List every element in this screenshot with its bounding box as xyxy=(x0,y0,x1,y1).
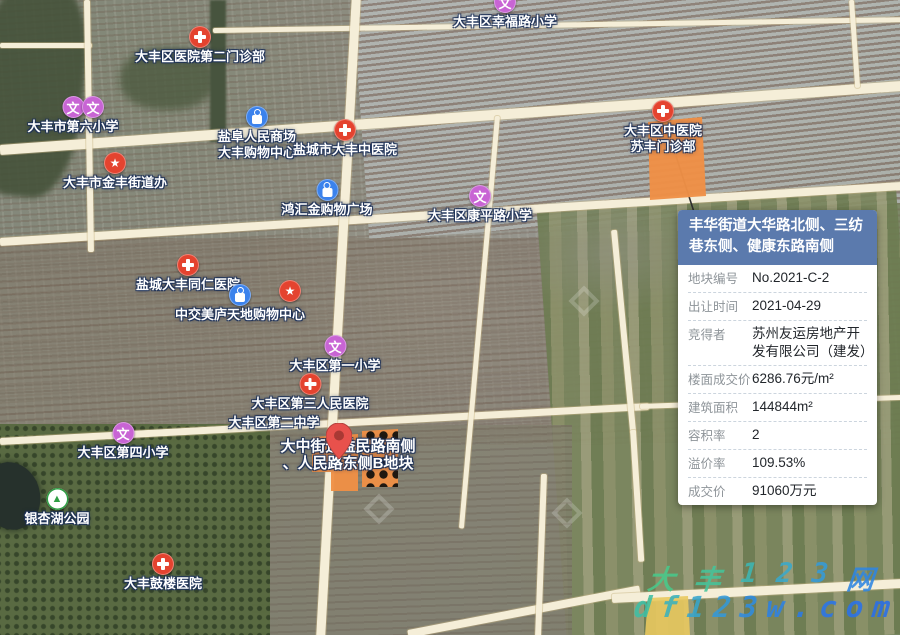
shopping-icon xyxy=(246,106,268,128)
row-value: 2021-04-29 xyxy=(752,297,867,316)
poi-label: 大丰市金丰街道办 xyxy=(63,175,167,190)
hospital-icon xyxy=(177,254,199,276)
parcel-info-row: 容积率 2 xyxy=(688,422,867,450)
poi-label: 鸿汇金购物广场 xyxy=(281,202,372,217)
gov-jinfeng-subdistrict[interactable]: ★ 大丰市金丰街道办 xyxy=(63,152,167,190)
row-value: 109.53% xyxy=(752,454,867,473)
poi-label: 大丰区第三人民医院 xyxy=(251,396,368,411)
poi-label: 盐城市大丰中医院 xyxy=(293,142,397,157)
mall-yanfu-renmin[interactable]: 盐阜人民商场大丰购物中心 xyxy=(218,106,296,160)
row-label: 出让时间 xyxy=(688,297,752,316)
school-xingfulu-primary[interactable]: 文 大丰区幸福路小学 xyxy=(453,0,557,29)
poi-label: 大丰区医院第二门诊部 xyxy=(135,49,265,64)
mall-honghuijin[interactable]: 鸿汇金购物广场 xyxy=(281,179,372,217)
parcel-info-row: 建筑面积 144844m² xyxy=(688,394,867,422)
poi-label: 大丰区中医院 xyxy=(624,123,702,138)
school-no2-middle[interactable]: 大丰区第二中学 xyxy=(228,414,319,430)
star-poi[interactable]: ★ xyxy=(279,280,301,302)
row-label: 容积率 xyxy=(688,426,752,445)
poi-label: 苏丰门诊部 xyxy=(630,139,695,154)
parcel-yellow[interactable] xyxy=(645,596,690,635)
poi-label: 银杏湖公园 xyxy=(24,511,89,526)
hospital-icon xyxy=(189,26,211,48)
parcel-info-row: 地块编号 No.2021-C-2 xyxy=(688,265,867,293)
hospital-district-no2-clinic[interactable]: 大丰区医院第二门诊部 xyxy=(135,26,265,64)
poi-label: 大丰区康平路小学 xyxy=(428,208,532,223)
poi-label: 中交美庐天地购物中心 xyxy=(175,307,305,322)
parcel-info-row: 成交价 91060万元 xyxy=(688,478,867,505)
park-icon: ▲ xyxy=(46,488,68,510)
row-label: 竞得者 xyxy=(688,325,752,361)
parcel-info-title: 丰华街道大华路北侧、三纺巷东侧、健康东路南侧 xyxy=(678,210,877,265)
map-canvas[interactable]: 文 大丰区幸福路小学 大丰区医院第二门诊部 文 大丰市第六小学 文 盐阜人民商场… xyxy=(0,0,900,635)
poi-label: 大丰区第二中学 xyxy=(228,415,319,430)
school-icon: 文 xyxy=(82,96,104,118)
hospital-icon xyxy=(299,373,321,395)
row-value: 6286.76元/m² xyxy=(752,370,867,389)
row-label: 溢价率 xyxy=(688,454,752,473)
poi-label: 大丰区幸福路小学 xyxy=(453,14,557,29)
parcel-info-row: 出让时间 2021-04-29 xyxy=(688,293,867,321)
row-label: 楼面成交价 xyxy=(688,370,752,389)
row-value: 苏州友运房地产开发有限公司（建发） xyxy=(752,325,867,361)
poi-label: 大丰鼓楼医院 xyxy=(124,576,202,591)
hospital-dafeng-tcm[interactable]: 盐城市大丰中医院 xyxy=(293,119,397,157)
hospital-icon xyxy=(652,100,674,122)
school-icon: 文 xyxy=(469,185,491,207)
hospital-no3-people[interactable]: 大丰区第三人民医院 xyxy=(251,373,368,411)
hospital-tcm-sufeng-clinic[interactable]: 大丰区中医院苏丰门诊部 xyxy=(624,100,702,154)
hospital-icon xyxy=(334,119,356,141)
hospital-gulou[interactable]: 大丰鼓楼医院 xyxy=(124,553,202,591)
parcel-info-rows: 地块编号 No.2021-C-2 出让时间 2021-04-29 竞得者 苏州友… xyxy=(678,265,877,505)
poi-label: 大丰区第四小学 xyxy=(77,445,168,460)
row-value: 91060万元 xyxy=(752,482,867,501)
parcel-info-row: 楼面成交价 6286.76元/m² xyxy=(688,366,867,394)
row-value: No.2021-C-2 xyxy=(752,269,867,288)
school-no4-primary[interactable]: 文 大丰区第四小学 xyxy=(77,422,168,460)
row-value: 144844m² xyxy=(752,398,867,417)
hospital-icon xyxy=(152,553,174,575)
row-value: 2 xyxy=(752,426,867,445)
school-icon: 文 xyxy=(324,335,346,357)
road xyxy=(0,43,92,48)
star-icon: ★ xyxy=(104,152,126,174)
park-yinxinghu[interactable]: ▲ 银杏湖公园 xyxy=(24,488,89,526)
school-kangpinglu-primary[interactable]: 文 大丰区康平路小学 xyxy=(428,185,532,223)
school-icon: 文 xyxy=(62,96,84,118)
poi-label: 盐阜人民商场 xyxy=(218,129,296,144)
location-pin-icon[interactable] xyxy=(326,423,352,459)
parcel-info-row: 竞得者 苏州友运房地产开发有限公司（建发） xyxy=(688,321,867,366)
poi-label: 大丰区第一小学 xyxy=(289,358,380,373)
school-no6-primary-b[interactable]: 文 xyxy=(82,96,104,118)
school-no1-primary[interactable]: 文 大丰区第一小学 xyxy=(289,335,380,373)
row-label: 成交价 xyxy=(688,482,752,501)
row-label: 建筑面积 xyxy=(688,398,752,417)
shopping-icon xyxy=(229,284,251,306)
school-no6-primary[interactable]: 文 大丰市第六小学 xyxy=(27,96,118,134)
poi-label: 大丰市第六小学 xyxy=(27,119,118,134)
parcel-info-row: 溢价率 109.53% xyxy=(688,450,867,478)
parcel-info-panel: 丰华街道大华路北侧、三纺巷东侧、健康东路南侧 地块编号 No.2021-C-2 … xyxy=(678,210,877,505)
shopping-icon xyxy=(316,179,338,201)
star-icon: ★ xyxy=(279,280,301,302)
poi-label: 大丰购物中心 xyxy=(218,145,296,160)
row-label: 地块编号 xyxy=(688,269,752,288)
school-icon: 文 xyxy=(494,0,516,13)
school-icon: 文 xyxy=(112,422,134,444)
